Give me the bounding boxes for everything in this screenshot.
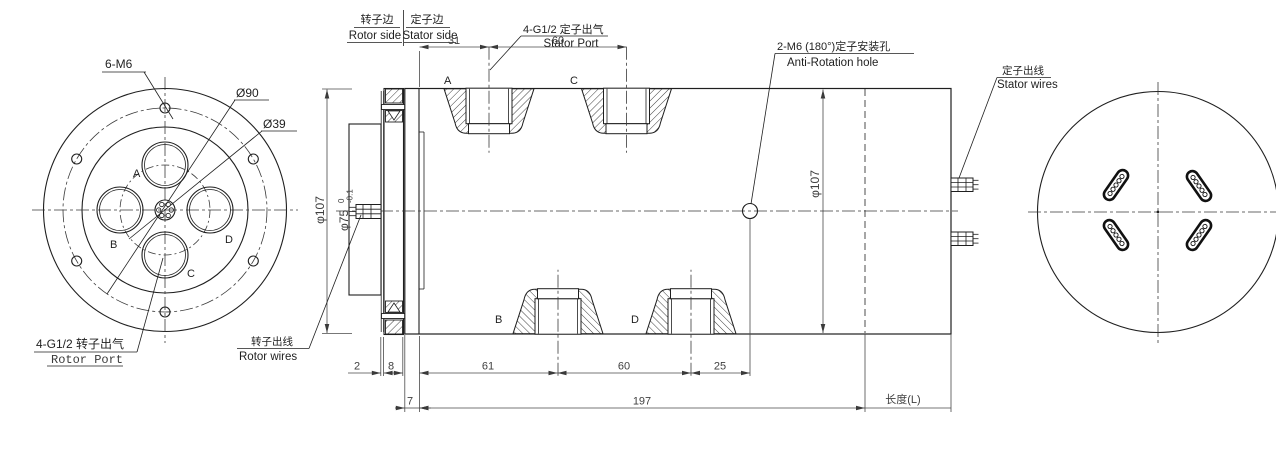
leader-6m6 — [144, 72, 173, 119]
label-rotor-port-cn: 4-G1/2 转子出气 — [36, 336, 124, 351]
section-port-c-label: C — [570, 75, 578, 87]
leader-stator-port — [490, 36, 521, 70]
section-port-a-label: A — [444, 75, 452, 87]
dim-2: 2 — [354, 361, 360, 373]
front-port-b-label: B — [110, 239, 117, 251]
label-bolt-circle-dia: Ø90 — [236, 86, 259, 100]
label-port-circle-dia: Ø39 — [263, 117, 286, 131]
label-rotor-port-en: Rotor Port — [51, 353, 123, 367]
dim-body-dia: φ107 — [808, 170, 822, 198]
stator-wires-connector-top — [951, 178, 979, 192]
dim-60-bottom: 60 — [618, 361, 630, 373]
leader-stator-wires — [959, 78, 997, 179]
dim-8: 8 — [388, 361, 394, 373]
front-port-c-label: C — [187, 268, 195, 280]
front-port-a-label: A — [133, 168, 141, 180]
label-stator-port-cn: 4-G1/2 定子出气 — [523, 22, 604, 36]
label-stator-wires-en: Stator wires — [997, 79, 1058, 91]
leader-d90 — [107, 100, 235, 294]
dim-31: 31 — [448, 35, 460, 47]
front-view: 6-M6 Ø90 Ø39 4-G1/2 转子出气 Rotor Port A B … — [32, 57, 298, 367]
dim-25: 25 — [714, 361, 726, 373]
stator-wires-connector-bottom — [951, 232, 979, 246]
label-rotor-side-en: Rotor side — [349, 30, 401, 42]
drawing-canvas: 6-M6 Ø90 Ø39 4-G1/2 转子出气 Rotor Port A B … — [0, 0, 1276, 455]
rotor-flange — [384, 89, 404, 335]
label-stator-wires-cn: 定子出线 — [1002, 64, 1044, 77]
dim-60-top: 60 — [552, 35, 564, 47]
side-headers: 转子边 Rotor side 定子边 Stator side — [347, 10, 457, 46]
wire-slot-bottom-left — [1102, 218, 1131, 252]
wire-slot-top-right — [1185, 169, 1214, 203]
label-bolt-pattern: 6-M6 — [105, 57, 133, 71]
label-stator-side-cn: 定子边 — [411, 12, 444, 26]
dim-61: 61 — [482, 361, 494, 373]
label-anti-rotation-cn: 2-M6 (180°)定子安装孔 — [777, 39, 890, 53]
rear-view — [1028, 82, 1276, 344]
dim-flange-dia: φ107 — [313, 196, 327, 224]
section-port-d-label: D — [631, 314, 639, 326]
dim-7: 7 — [407, 396, 413, 408]
label-rotor-side-cn: 转子边 — [361, 12, 394, 26]
leader-d39 — [129, 131, 262, 239]
dim-total-length: 长度(L) — [885, 392, 920, 406]
section-view: φ107 φ107 φ75 0 -0.1 — [237, 10, 1058, 412]
dim-197: 197 — [633, 396, 651, 408]
rear-center-dot — [1157, 211, 1160, 214]
front-port-d-label: D — [225, 234, 233, 246]
section-port-b-label: B — [495, 314, 502, 326]
dim-boss-dia: φ75 — [337, 210, 351, 231]
label-rotor-wires-en: Rotor wires — [239, 351, 297, 363]
label-rotor-wires-cn: 转子出线 — [251, 335, 293, 348]
wire-slot-top-left — [1102, 168, 1131, 202]
label-anti-rotation-en: Anti-Rotation hole — [787, 57, 878, 69]
technical-drawing-rotary-union: 6-M6 Ø90 Ø39 4-G1/2 转子出气 Rotor Port A B … — [0, 0, 1276, 455]
dim-boss-tol-lower: -0.1 — [346, 189, 355, 203]
wire-slot-bottom-right — [1185, 218, 1214, 252]
